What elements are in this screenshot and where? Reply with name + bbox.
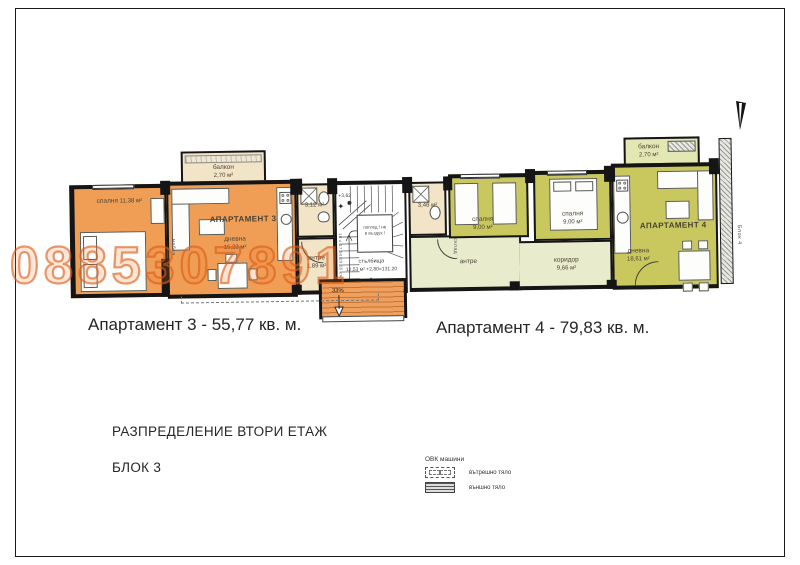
living-ap4-area: 18,61 м² bbox=[627, 256, 650, 262]
balcony-ap3-name: балкон bbox=[213, 164, 234, 171]
bedroom2-ap4-label: спалня 9,00 м² bbox=[548, 210, 598, 227]
bed-pillow bbox=[553, 181, 571, 191]
bath-ap4-area: 3,46 м² bbox=[411, 202, 443, 210]
floor-title: РАЗПРЕДЕЛЕНИЕ ВТОРИ ЕТАЖ bbox=[112, 424, 327, 439]
bedroom-ap3-name: спалня bbox=[97, 198, 118, 205]
indoor-unit-symbol bbox=[425, 467, 455, 478]
legend-row-indoor: вътрешно тяло bbox=[425, 467, 511, 478]
bedroom1-ap4-name: спалня bbox=[472, 216, 493, 223]
bedroom2-ap4-area: 9,00 м² bbox=[563, 219, 583, 225]
chair bbox=[682, 241, 692, 250]
window bbox=[460, 174, 500, 180]
stove-icon bbox=[616, 180, 628, 192]
stair-level-mark: +3,62 bbox=[338, 193, 351, 199]
balcony-ap4: балкон 2,70 м² bbox=[623, 136, 699, 165]
indoor-unit-label: вътрешно тяло bbox=[469, 470, 511, 476]
wall-pier bbox=[709, 158, 719, 174]
balcony-railing bbox=[185, 154, 262, 163]
watermark-phone: 0885307891 bbox=[10, 236, 349, 296]
hvac-legend: ОВК машини вътрешно тяло външно тяло bbox=[425, 456, 511, 497]
stair-note-line2: в въздух ! bbox=[365, 231, 385, 236]
apartment3-caption: Апартамент 3 - 55,77 кв. м. bbox=[88, 315, 301, 335]
bath-ap3-area: 3,12 м² bbox=[299, 202, 329, 210]
balcony-ap4-name: балкон bbox=[638, 143, 659, 150]
shower-cross-icon bbox=[412, 186, 429, 203]
storage-label: склад bbox=[452, 238, 458, 254]
dining-table bbox=[678, 250, 710, 280]
wall-pier bbox=[327, 178, 337, 194]
adjacent-block-label: Блок 4 bbox=[736, 225, 742, 245]
antre-ap4-label: антре bbox=[450, 258, 486, 267]
outdoor-unit-label: външно тяло bbox=[469, 485, 505, 491]
bedroom1-ap4-label: спалня 9,00 м² bbox=[460, 215, 506, 232]
survey-star-icon: ✦ bbox=[337, 203, 344, 211]
stair-note: поглед ! не в въздух ! bbox=[357, 214, 394, 253]
stair-note-line1: поглед ! не bbox=[363, 224, 386, 229]
apartment3-title: АПАРТАМЕНТ 3 bbox=[210, 214, 277, 224]
sofa bbox=[171, 188, 229, 205]
door-arc bbox=[634, 261, 658, 285]
bedroom1-ap4-area: 9,00 м² bbox=[473, 225, 493, 231]
chair bbox=[683, 283, 693, 292]
corridor-ap4-area: 9,66 м² bbox=[557, 265, 577, 271]
legend-title: ОВК машини bbox=[425, 456, 511, 463]
corridor-ap4-name: коридор bbox=[554, 256, 579, 263]
legend-row-outdoor: външно тяло bbox=[425, 482, 511, 493]
living-ap4-label: дневна 18,61 м² bbox=[616, 247, 660, 264]
north-arrow-icon bbox=[733, 100, 749, 132]
balcony-ap3-area: 2,70 м² bbox=[214, 173, 234, 179]
window bbox=[547, 170, 587, 176]
chair bbox=[699, 282, 709, 291]
sofa bbox=[697, 170, 714, 220]
coffee-table bbox=[665, 201, 689, 219]
wall-pier bbox=[510, 281, 520, 290]
balcony-ap3-label: балкон 2,70 м² bbox=[183, 163, 264, 181]
wardrobe bbox=[150, 198, 164, 224]
chair bbox=[698, 240, 708, 249]
level-dot bbox=[347, 201, 351, 205]
block-title: БЛОК 3 bbox=[112, 460, 161, 475]
bed-pillow bbox=[575, 181, 593, 191]
wall-pier bbox=[290, 179, 302, 195]
wall-pier bbox=[160, 181, 170, 195]
wall-pier bbox=[525, 169, 535, 183]
corridor-ap4-label: коридор 9,66 м² bbox=[538, 256, 594, 274]
living-ap4-name: дневна bbox=[627, 247, 649, 254]
bedroom-ap3-label: спалня 11,38 м² bbox=[87, 197, 151, 207]
window bbox=[92, 184, 134, 190]
room-bedroom2-ap4 bbox=[533, 170, 612, 241]
adjacent-block-wall bbox=[718, 138, 733, 284]
wall-pier bbox=[443, 176, 452, 190]
apartment4-title: АПАРТАМЕНТ 4 bbox=[640, 220, 707, 230]
stairwell-calc: +2,80=131,20 bbox=[366, 266, 397, 272]
outdoor-unit-symbol bbox=[425, 482, 455, 493]
balcony-ap4-area: 2,70 м² bbox=[639, 152, 659, 158]
wall-pier bbox=[402, 177, 412, 193]
balcony-ap4-label: балкон 2,70 м² bbox=[626, 143, 672, 160]
antre-ap4-name: антре bbox=[460, 258, 478, 265]
bedroom2-ap4-name: спалня bbox=[562, 210, 583, 217]
bedroom-ap3-area: 11,38 м² bbox=[120, 198, 142, 204]
wall-pier bbox=[604, 166, 615, 182]
hvac-outdoor-unit bbox=[668, 140, 696, 151]
sink-icon bbox=[617, 212, 629, 224]
sink-icon bbox=[318, 211, 330, 222]
wall-pier bbox=[607, 280, 617, 289]
floor-plan-sheet: балкон 2,70 м² балкон 2,70 м² спалня 11,… bbox=[0, 0, 800, 565]
apartment4-caption: Апартамент 4 - 79,83 кв. м. bbox=[436, 318, 649, 338]
ramp-steps-edge bbox=[322, 315, 404, 322]
